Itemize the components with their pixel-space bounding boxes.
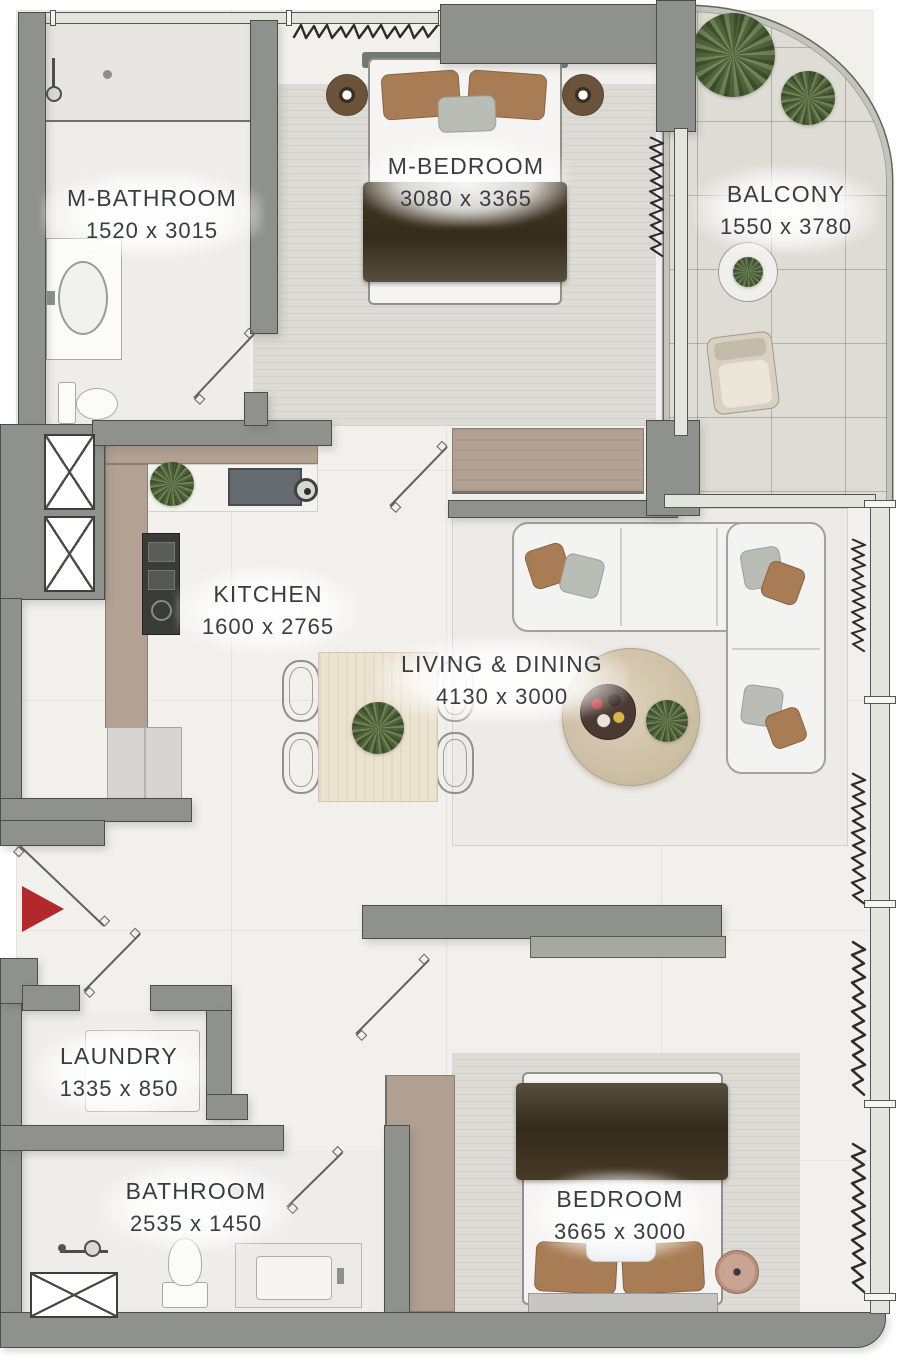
wall [92,420,332,446]
kitchen-sink [228,468,302,506]
balcony-door-glass [664,494,876,508]
nightstand-lamp [326,74,368,116]
wall [384,1125,410,1315]
balcony-lounge-chair [705,330,780,415]
room-dims: 3665 x 3000 [554,1216,686,1247]
room-dims: 1335 x 850 [60,1073,179,1104]
room-name: M-BATHROOM [67,182,237,215]
curtain-squiggle-icon [850,940,868,1100]
room-label-m-bathroom: M-BATHROOM 1520 x 3015 [67,182,237,246]
kitchen-burner [294,478,318,502]
room-name: BALCONY [720,178,852,211]
window-mullion [864,1100,896,1108]
curtain-squiggle-icon [292,22,442,40]
curtain-squiggle-icon [850,538,868,655]
room-dims: 4130 x 3000 [401,681,603,712]
room-name: KITCHEN [202,578,334,611]
room-label-balcony: BALCONY 1550 x 3780 [720,178,852,242]
shower-knob-icon [58,1244,66,1252]
room-name: LIVING & DINING [401,648,603,681]
faucet-icon [337,1268,344,1284]
sofa-seam [732,648,820,650]
burner-center [304,488,311,495]
balcony-window [674,128,688,436]
m-bathroom-shower-area [46,24,250,122]
room-label-kitchen: KITCHEN 1600 x 2765 [202,578,334,642]
curtain-squiggle-icon [648,136,666,260]
shower-head-icon [46,86,62,102]
room-label-m-bedroom: M-BEDROOM 3080 x 3365 [388,150,544,214]
balcony-tile-grid [669,11,887,501]
curtain-wall-glass [870,502,890,1314]
room-name: BEDROOM [554,1183,686,1216]
sofa-seam [716,528,718,626]
balcony-table-plant-icon [733,257,763,287]
dining-chair [436,732,474,794]
room-label-living-dining: LIVING & DINING 4130 x 3000 [401,648,603,712]
kitchen-plant-icon [150,462,194,506]
entry-arrow-icon [22,886,64,932]
sofa-seam [620,528,622,626]
curtain-squiggle-icon [850,772,868,908]
room-dims: 1600 x 2765 [202,611,334,642]
dining-chair [282,660,320,722]
plant-icon [781,71,835,125]
wall-bottom [0,1312,886,1348]
room-dims: 2535 x 1450 [126,1208,267,1239]
window-mullion [864,900,896,908]
window-mullion [864,500,896,508]
fridge-door-line [144,728,146,802]
bed-blanket [516,1083,728,1180]
shower-head-icon [84,1240,101,1257]
chair-backrest [713,337,767,361]
room-dims: 1520 x 3015 [67,215,237,246]
service-shaft-icon [30,1272,118,1318]
chair-cushion [718,359,773,409]
toilet-bowl [76,388,118,420]
palm-plant-icon [691,13,775,97]
room-dims: 3080 x 3365 [388,183,544,214]
wall [656,0,696,132]
wall [0,820,105,846]
dial-icon [151,600,172,621]
microwave-icon [148,570,175,590]
room-label-laundry: LAUNDRY 1335 x 850 [60,1040,179,1104]
toilet-tank [58,382,76,424]
nightstand-lamp [562,74,604,116]
wall [22,985,80,1011]
wall [150,985,232,1011]
window-mullion [864,1293,896,1301]
wall [362,905,722,939]
kitchen-appliance-tower [142,533,180,635]
fridge [107,727,182,803]
window-mullion [864,696,896,704]
wall [0,798,192,822]
wall [440,4,668,64]
bedside-table [715,1250,759,1294]
curtain-squiggle-icon [850,1142,868,1297]
room-label-bedroom: BEDROOM 3665 x 3000 [554,1183,686,1247]
floor-drain-icon [103,70,112,79]
room-dims: 1550 x 3780 [720,211,852,242]
service-shaft-icon [44,516,95,592]
service-shaft-icon [44,434,95,510]
wall-shelf [530,936,726,958]
dining-chair [282,732,320,794]
sink-basin [58,261,108,335]
oven-icon [148,542,175,562]
room-label-bathroom: BATHROOM 2535 x 1450 [126,1175,267,1239]
wall [448,500,678,518]
room-name: M-BEDROOM [388,150,544,183]
tv-console [452,428,644,494]
coffee-table-plant-icon [646,700,688,742]
bath-vanity [235,1243,362,1308]
room-name: BATHROOM [126,1175,267,1208]
sink-basin [256,1256,332,1300]
wall [0,1125,284,1151]
wall-jamb [244,392,268,426]
faucet-icon [47,291,55,305]
wall-jamb [206,1094,248,1120]
floor-plan: M-BATHROOM 1520 x 3015 M-BEDROOM 3080 x … [0,0,900,1364]
wall [0,598,22,800]
m-bed-pillow [437,95,496,133]
room-name: LAUNDRY [60,1040,179,1073]
window-mullion [50,10,56,26]
